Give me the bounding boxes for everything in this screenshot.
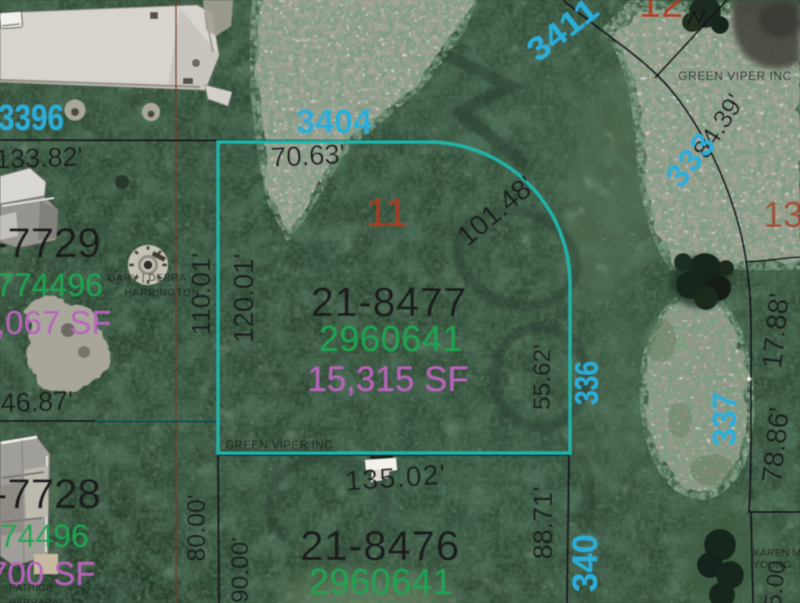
svg-text:774496: 774496 <box>0 518 89 554</box>
svg-text:133.82': 133.82' <box>0 141 83 174</box>
svg-text:5.00: 5.00 <box>760 559 792 603</box>
svg-text:80.00': 80.00' <box>183 494 211 561</box>
svg-text:GREEN VIPER INC: GREEN VIPER INC <box>678 69 792 83</box>
svg-text:GREEN VIPER INC: GREEN VIPER INC <box>225 440 333 452</box>
svg-text:11: 11 <box>366 191 408 235</box>
svg-text:774496: 774496 <box>0 267 103 303</box>
svg-text:KAREN M: KAREN M <box>753 547 800 559</box>
svg-text:3396: 3396 <box>0 97 64 138</box>
svg-text:70.63': 70.63' <box>270 138 346 173</box>
svg-text:337: 337 <box>706 392 744 446</box>
svg-text:BARBARA: BARBARA <box>9 597 59 603</box>
svg-text:120.01': 120.01' <box>228 253 259 342</box>
svg-text:46.87': 46.87' <box>0 386 74 419</box>
svg-text:12: 12 <box>639 0 684 26</box>
svg-text:GARY | DEBRA: GARY | DEBRA <box>108 272 187 284</box>
svg-text:2960641: 2960641 <box>309 561 453 602</box>
svg-text:88.71': 88.71' <box>528 487 558 560</box>
svg-text:3404: 3404 <box>296 103 372 141</box>
svg-text:336: 336 <box>568 361 605 405</box>
svg-text:HARRINGTON: HARRINGTON <box>124 287 199 299</box>
svg-text:PATRICK: PATRICK <box>9 582 53 594</box>
svg-text:13: 13 <box>763 194 800 235</box>
svg-text:2960641: 2960641 <box>319 318 463 359</box>
svg-text:55.62': 55.62' <box>529 344 556 410</box>
svg-text:1-7729: 1-7729 <box>0 219 101 266</box>
svg-text:15,315 SF: 15,315 SF <box>307 360 469 399</box>
svg-text:1-7728: 1-7728 <box>0 470 101 517</box>
svg-text:90.00': 90.00' <box>227 537 254 603</box>
svg-text:340: 340 <box>566 534 605 592</box>
svg-text:,067 SF: ,067 SF <box>0 304 112 341</box>
